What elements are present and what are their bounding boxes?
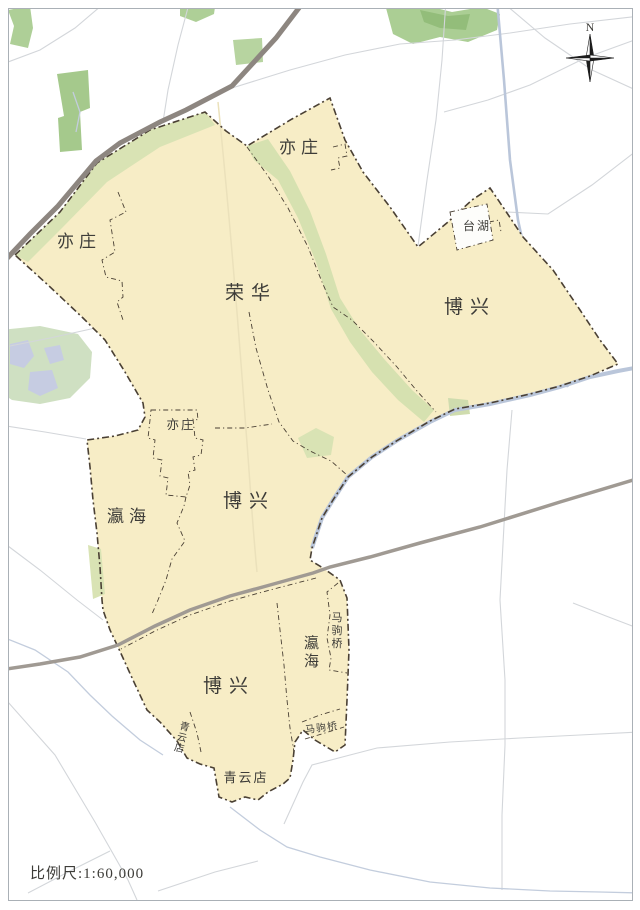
label-yizhuang-center: 亦庄 (166, 417, 195, 432)
label-taihu: 台湖 (463, 218, 491, 233)
compass-north-label: N (586, 20, 595, 34)
district-map-page: N 亦庄 亦庄 荣华 博兴 台湖 亦庄 瀛海 博兴 瀛海 马驹桥 博兴 马驹桥 … (0, 0, 640, 910)
label-ronghua: 荣华 (225, 282, 277, 304)
label-boxing-south: 博兴 (203, 675, 255, 697)
label-majuqiao-vertical: 马驹桥 (330, 611, 343, 650)
label-yinghai-west: 瀛海 (107, 506, 151, 526)
district-map: N 亦庄 亦庄 荣华 博兴 台湖 亦庄 瀛海 博兴 瀛海 马驹桥 博兴 马驹桥 … (0, 0, 640, 910)
scale-text: 比例尺:1:60,000 (30, 865, 144, 882)
label-boxing-center: 博兴 (223, 490, 275, 512)
label-yinghai-se: 瀛海 (302, 634, 319, 671)
label-boxing-east: 博兴 (444, 296, 496, 318)
label-qingyundian: 青云店 (223, 770, 268, 785)
label-yizhuang-west: 亦庄 (57, 232, 101, 251)
label-yizhuang-ne: 亦庄 (279, 138, 323, 157)
